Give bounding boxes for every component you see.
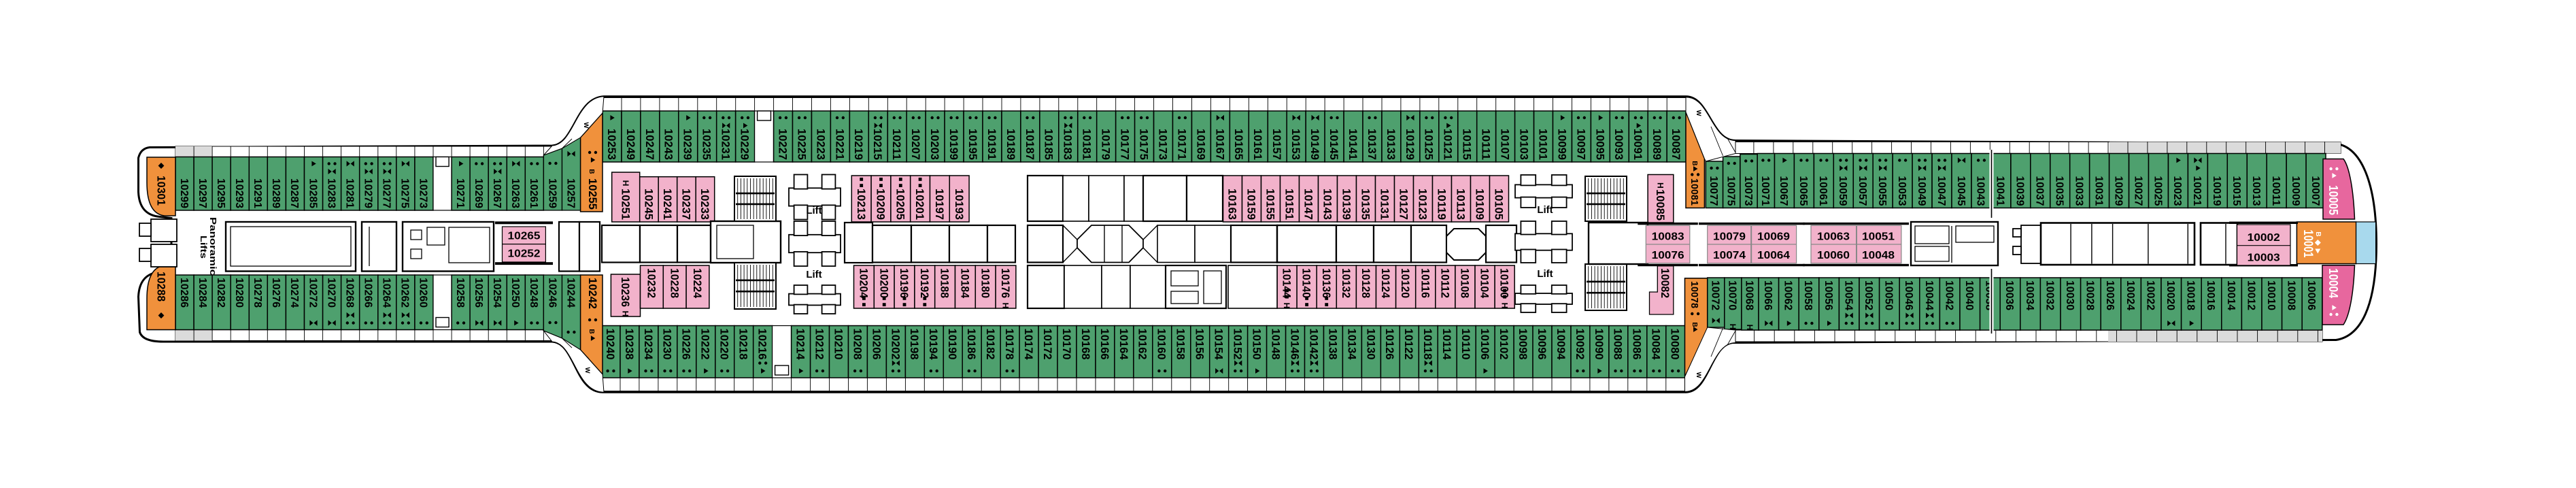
svg-text:10007: 10007	[2309, 176, 2321, 206]
svg-text:10123: 10123	[1417, 189, 1429, 220]
svg-text:10044: 10044	[1923, 280, 1935, 310]
svg-text:10227: 10227	[776, 129, 789, 160]
svg-text:10167: 10167	[1213, 129, 1226, 160]
svg-text:10185: 10185	[1043, 129, 1055, 160]
svg-text:H: H	[621, 311, 630, 317]
svg-text:10198: 10198	[908, 329, 921, 360]
svg-text:10091: 10091	[1631, 129, 1644, 160]
svg-text:10140: 10140	[1300, 268, 1312, 298]
svg-text:10021: 10021	[2191, 176, 2203, 206]
svg-text:10264: 10264	[381, 278, 392, 308]
svg-text:10203: 10203	[928, 129, 941, 160]
svg-text:10075: 10075	[1725, 176, 1737, 206]
svg-text:10224: 10224	[691, 268, 703, 299]
svg-text:10252: 10252	[508, 248, 541, 260]
svg-text:10046: 10046	[1903, 280, 1914, 310]
svg-text:10005: 10005	[2326, 185, 2340, 215]
svg-text:10172: 10172	[1041, 329, 1054, 360]
svg-text:10187: 10187	[1023, 129, 1036, 160]
svg-text:H: H	[1499, 303, 1509, 309]
svg-text:Lift: Lift	[806, 269, 821, 280]
svg-text:10090: 10090	[1593, 329, 1606, 360]
svg-text:10061: 10061	[1817, 176, 1829, 206]
svg-text:10039: 10039	[2014, 176, 2026, 206]
svg-text:10048: 10048	[1862, 250, 1895, 261]
svg-text:10096: 10096	[1536, 329, 1548, 360]
svg-text:10093: 10093	[1612, 129, 1625, 160]
svg-text:10229: 10229	[739, 129, 751, 160]
svg-text:10043: 10043	[1975, 176, 1986, 206]
svg-text:10248: 10248	[528, 278, 539, 308]
svg-text:10027: 10027	[2132, 176, 2143, 206]
svg-text:10078: 10078	[1689, 281, 1700, 308]
svg-text:10268: 10268	[343, 278, 355, 308]
svg-text:10012: 10012	[2245, 280, 2256, 310]
svg-text:10014: 10014	[2225, 280, 2237, 310]
svg-text:10213: 10213	[855, 189, 867, 220]
svg-text:10261: 10261	[528, 178, 539, 208]
svg-text:10154: 10154	[1213, 329, 1225, 361]
svg-text:10082: 10082	[1659, 268, 1671, 298]
svg-text:10120: 10120	[1399, 268, 1411, 298]
svg-text:10180: 10180	[979, 268, 991, 298]
svg-text:H: H	[1001, 303, 1011, 309]
svg-text:10256: 10256	[473, 278, 484, 308]
svg-text:10143: 10143	[1321, 189, 1334, 220]
svg-text:10040: 10040	[1963, 280, 1975, 310]
svg-text:10119: 10119	[1436, 189, 1448, 220]
svg-text:10272: 10272	[307, 278, 318, 308]
svg-text:10025: 10025	[2152, 176, 2163, 206]
svg-text:10253: 10253	[605, 129, 618, 160]
svg-text:10200: 10200	[877, 268, 889, 298]
svg-text:10135: 10135	[1359, 189, 1372, 220]
svg-text:10197: 10197	[933, 189, 945, 220]
svg-text:10022: 10022	[2144, 280, 2156, 310]
svg-text:10182: 10182	[984, 329, 997, 360]
svg-text:10286: 10286	[178, 278, 190, 308]
svg-text:10003: 10003	[2248, 253, 2280, 264]
svg-text:B: B	[1691, 322, 1698, 327]
svg-text:10174: 10174	[1022, 329, 1035, 361]
svg-text:10270: 10270	[325, 278, 337, 308]
svg-text:10196: 10196	[898, 268, 910, 298]
svg-text:10107: 10107	[1499, 129, 1512, 160]
svg-text:10071: 10071	[1759, 176, 1771, 206]
svg-text:10081: 10081	[1689, 178, 1700, 206]
svg-text:10134: 10134	[1345, 329, 1358, 361]
svg-text:10279: 10279	[362, 178, 374, 208]
svg-text:H: H	[1728, 324, 1738, 330]
svg-text:10175: 10175	[1138, 129, 1151, 160]
svg-text:10011: 10011	[2270, 176, 2282, 206]
svg-text:10262: 10262	[399, 278, 411, 308]
svg-text:Lift: Lift	[806, 205, 821, 216]
svg-text:10169: 10169	[1194, 129, 1207, 160]
svg-text:10064: 10064	[1757, 250, 1790, 261]
svg-text:W: W	[583, 368, 591, 374]
svg-text:10131: 10131	[1378, 189, 1391, 220]
svg-text:10274: 10274	[288, 278, 300, 308]
svg-text:10060: 10060	[1817, 250, 1850, 261]
svg-text:10164: 10164	[1117, 329, 1130, 361]
svg-text:10065: 10065	[1797, 176, 1809, 206]
svg-text:H: H	[1282, 303, 1291, 309]
svg-text:10251: 10251	[619, 189, 631, 220]
svg-text:10209: 10209	[875, 189, 887, 220]
svg-text:10161: 10161	[1251, 129, 1264, 160]
svg-text:10068: 10068	[1744, 280, 1755, 310]
svg-text:10152: 10152	[1232, 329, 1244, 360]
svg-text:10223: 10223	[814, 129, 827, 160]
svg-text:10109: 10109	[1474, 189, 1486, 220]
svg-text:10105: 10105	[1493, 189, 1505, 220]
svg-text:10277: 10277	[381, 178, 392, 208]
svg-text:10002: 10002	[2248, 232, 2280, 244]
svg-text:10288: 10288	[154, 272, 167, 302]
svg-text:10114: 10114	[1440, 329, 1453, 361]
svg-text:10124: 10124	[1379, 268, 1391, 299]
svg-text:10128: 10128	[1359, 268, 1372, 298]
svg-text:10139: 10139	[1340, 189, 1353, 220]
svg-text:10250: 10250	[509, 278, 521, 308]
svg-text:10087: 10087	[1670, 129, 1682, 160]
svg-text:10183: 10183	[1062, 129, 1074, 160]
svg-text:10018: 10018	[2185, 280, 2197, 310]
svg-text:10155: 10155	[1264, 189, 1276, 220]
svg-text:10202: 10202	[889, 329, 902, 360]
svg-text:10293: 10293	[233, 178, 245, 208]
svg-text:10201: 10201	[913, 189, 926, 220]
svg-text:10284: 10284	[197, 278, 208, 308]
svg-text:Lift: Lift	[1537, 204, 1553, 216]
svg-text:10162: 10162	[1136, 329, 1149, 360]
svg-text:10190: 10190	[946, 329, 959, 360]
svg-text:10149: 10149	[1308, 129, 1321, 160]
svg-text:10079: 10079	[1713, 231, 1746, 243]
svg-text:10041: 10041	[1995, 176, 2006, 206]
svg-text:10186: 10186	[965, 329, 978, 360]
svg-text:10278: 10278	[252, 278, 263, 308]
svg-text:10246: 10246	[547, 278, 558, 308]
svg-text:10189: 10189	[1004, 129, 1017, 160]
svg-text:W: W	[1695, 110, 1702, 116]
svg-text:10188: 10188	[938, 268, 951, 298]
svg-text:10241: 10241	[661, 189, 673, 220]
svg-text:10265: 10265	[508, 231, 541, 242]
svg-text:10136: 10136	[1320, 268, 1332, 298]
svg-text:10147: 10147	[1302, 189, 1315, 220]
svg-text:10125: 10125	[1423, 129, 1436, 160]
svg-text:10016: 10016	[2205, 280, 2216, 310]
svg-text:10255: 10255	[586, 178, 598, 210]
svg-text:10127: 10127	[1397, 189, 1410, 220]
svg-text:10051: 10051	[1862, 231, 1895, 243]
svg-text:10266: 10266	[362, 278, 374, 308]
svg-text:10228: 10228	[668, 268, 680, 298]
svg-text:10159: 10159	[1245, 189, 1257, 220]
svg-text:10267: 10267	[491, 178, 503, 208]
svg-text:10258: 10258	[454, 278, 466, 308]
svg-text:10153: 10153	[1289, 129, 1302, 160]
svg-text:10219: 10219	[852, 129, 865, 160]
svg-text:10231: 10231	[719, 129, 732, 160]
svg-text:10176: 10176	[999, 268, 1011, 298]
svg-text:10232: 10232	[645, 268, 658, 298]
svg-text:10080: 10080	[1669, 329, 1682, 360]
svg-text:10129: 10129	[1404, 129, 1417, 160]
svg-text:10273: 10273	[418, 178, 429, 208]
svg-text:Panoramic: Panoramic	[208, 217, 218, 276]
svg-text:10113: 10113	[1455, 189, 1467, 220]
svg-text:10165: 10165	[1232, 129, 1245, 160]
svg-text:10245: 10245	[643, 189, 655, 220]
svg-text:10019: 10019	[2211, 176, 2222, 206]
svg-text:10225: 10225	[795, 129, 808, 160]
svg-text:10088: 10088	[1612, 329, 1625, 360]
svg-text:10233: 10233	[698, 189, 711, 220]
svg-text:10030: 10030	[2064, 280, 2075, 310]
svg-text:10285: 10285	[307, 178, 318, 208]
svg-text:10271: 10271	[454, 178, 466, 208]
svg-text:10275: 10275	[399, 178, 411, 208]
svg-text:10073: 10073	[1742, 176, 1754, 206]
svg-text:10257: 10257	[565, 178, 577, 208]
svg-text:10259: 10259	[547, 178, 558, 208]
svg-text:10132: 10132	[1340, 268, 1352, 298]
svg-text:10092: 10092	[1574, 329, 1587, 360]
svg-text:10297: 10297	[197, 178, 208, 208]
svg-text:10058: 10058	[1802, 280, 1814, 310]
svg-text:10089: 10089	[1650, 129, 1663, 160]
svg-text:10237: 10237	[680, 189, 692, 220]
svg-text:10056: 10056	[1823, 280, 1834, 310]
svg-text:10106: 10106	[1478, 329, 1491, 360]
svg-text:10163: 10163	[1226, 189, 1238, 220]
svg-text:10235: 10235	[700, 129, 713, 160]
svg-text:10210: 10210	[832, 329, 845, 360]
svg-text:10184: 10184	[959, 268, 971, 299]
svg-text:10029: 10029	[2112, 176, 2124, 206]
svg-text:10191: 10191	[985, 129, 998, 160]
svg-text:10141: 10141	[1346, 129, 1359, 160]
svg-text:10006: 10006	[2305, 280, 2317, 310]
svg-text:10211: 10211	[890, 129, 903, 160]
svg-text:10111: 10111	[1480, 129, 1493, 160]
svg-text:10263: 10263	[509, 178, 521, 208]
svg-text:10192: 10192	[918, 268, 930, 298]
svg-text:10045: 10045	[1955, 176, 1967, 206]
svg-text:10130: 10130	[1364, 329, 1377, 360]
svg-text:10282: 10282	[215, 278, 226, 308]
svg-text:10086: 10086	[1631, 329, 1644, 360]
svg-text:10193: 10193	[953, 189, 965, 220]
svg-text:10289: 10289	[270, 178, 282, 208]
svg-text:10026: 10026	[2104, 280, 2116, 310]
svg-text:10179: 10179	[1100, 129, 1113, 160]
svg-text:H: H	[1656, 182, 1665, 189]
svg-text:10160: 10160	[1155, 329, 1168, 360]
svg-text:Lift: Lift	[1537, 268, 1553, 280]
svg-text:10104: 10104	[1478, 268, 1491, 299]
svg-text:10254: 10254	[491, 278, 503, 308]
svg-text:10103: 10103	[1518, 129, 1531, 160]
svg-text:10050: 10050	[1883, 280, 1895, 310]
svg-text:10122: 10122	[1402, 329, 1415, 360]
svg-text:10148: 10148	[1270, 329, 1283, 360]
svg-text:10066: 10066	[1762, 280, 1774, 310]
svg-text:10100: 10100	[1498, 268, 1510, 298]
svg-text:10301: 10301	[154, 176, 167, 206]
svg-text:10085: 10085	[1654, 189, 1666, 221]
svg-text:10295: 10295	[215, 178, 226, 208]
svg-text:10032: 10032	[2044, 280, 2055, 310]
svg-text:10118: 10118	[1421, 329, 1434, 360]
svg-text:10126: 10126	[1383, 329, 1396, 360]
svg-text:B: B	[588, 169, 595, 174]
svg-text:10181: 10181	[1081, 129, 1094, 160]
svg-text:10222: 10222	[699, 329, 712, 360]
svg-text:10049: 10049	[1916, 176, 1927, 206]
svg-text:10062: 10062	[1782, 280, 1794, 310]
svg-text:10042: 10042	[1943, 280, 1954, 310]
svg-text:10199: 10199	[947, 129, 960, 160]
svg-text:10059: 10059	[1837, 176, 1848, 206]
svg-text:H: H	[1745, 325, 1755, 331]
svg-text:10001: 10001	[2301, 230, 2315, 258]
svg-text:10063: 10063	[1817, 231, 1850, 243]
svg-text:10214: 10214	[794, 329, 807, 361]
svg-text:Lifts: Lifts	[199, 235, 209, 259]
svg-text:10260: 10260	[418, 278, 429, 308]
svg-text:10205: 10205	[894, 189, 906, 220]
svg-text:10084: 10084	[1650, 329, 1663, 361]
svg-text:10170: 10170	[1060, 329, 1073, 360]
svg-text:10247: 10247	[643, 129, 656, 160]
svg-text:10094: 10094	[1555, 329, 1567, 361]
svg-text:10194: 10194	[927, 329, 940, 361]
svg-text:10047: 10047	[1935, 176, 1947, 206]
svg-text:10283: 10283	[325, 178, 337, 208]
svg-text:10158: 10158	[1174, 329, 1187, 360]
svg-text:10240: 10240	[604, 329, 617, 360]
svg-text:10115: 10115	[1461, 129, 1474, 160]
svg-text:10053: 10053	[1896, 176, 1908, 206]
svg-text:10204: 10204	[858, 268, 870, 299]
svg-text:10083: 10083	[1652, 231, 1684, 243]
svg-text:10036: 10036	[2003, 280, 2015, 310]
svg-text:10108: 10108	[1459, 268, 1471, 298]
svg-text:10110: 10110	[1459, 329, 1472, 360]
svg-text:W: W	[1695, 372, 1702, 378]
svg-text:10057: 10057	[1857, 176, 1868, 206]
svg-text:10035: 10035	[2054, 176, 2065, 206]
svg-text:10145: 10145	[1327, 129, 1340, 160]
svg-text:10242: 10242	[586, 278, 598, 309]
svg-text:10207: 10207	[909, 129, 922, 160]
svg-text:10151: 10151	[1283, 189, 1295, 220]
svg-text:10077: 10077	[1708, 176, 1719, 206]
svg-text:10098: 10098	[1516, 329, 1529, 360]
svg-text:10195: 10195	[966, 129, 979, 160]
svg-text:10215: 10215	[871, 129, 884, 160]
svg-text:10171: 10171	[1175, 129, 1188, 160]
svg-text:10101: 10101	[1536, 129, 1549, 160]
svg-text:10280: 10280	[233, 278, 245, 308]
svg-text:10142: 10142	[1307, 329, 1320, 360]
svg-text:10212: 10212	[813, 329, 826, 360]
svg-text:10276: 10276	[270, 278, 282, 308]
svg-text:10070: 10070	[1727, 280, 1738, 310]
svg-text:10024: 10024	[2124, 280, 2136, 310]
svg-text:10009: 10009	[2290, 176, 2301, 206]
svg-text:10236: 10236	[619, 277, 631, 307]
svg-text:10177: 10177	[1119, 129, 1132, 160]
svg-text:10291: 10291	[252, 178, 263, 208]
svg-text:10010: 10010	[2265, 280, 2277, 310]
svg-text:10116: 10116	[1419, 268, 1431, 298]
svg-text:10220: 10220	[718, 329, 731, 360]
svg-text:10234: 10234	[642, 329, 655, 361]
svg-text:10097: 10097	[1574, 129, 1587, 160]
svg-text:10249: 10249	[624, 129, 637, 160]
svg-text:10178: 10178	[1003, 329, 1016, 360]
svg-text:10218: 10218	[737, 329, 750, 360]
svg-text:10138: 10138	[1326, 329, 1339, 360]
svg-text:10168: 10168	[1079, 329, 1092, 360]
svg-text:10121: 10121	[1442, 129, 1455, 160]
svg-text:10023: 10023	[2171, 176, 2183, 206]
svg-text:B: B	[588, 329, 595, 334]
svg-text:10020: 10020	[2165, 280, 2176, 310]
svg-text:10034: 10034	[2024, 280, 2035, 310]
svg-text:10206: 10206	[870, 329, 883, 360]
svg-text:10076: 10076	[1652, 250, 1684, 261]
svg-text:10208: 10208	[851, 329, 864, 360]
svg-text:10238: 10238	[623, 329, 636, 360]
svg-text:10226: 10226	[680, 329, 693, 360]
svg-text:10069: 10069	[1757, 231, 1790, 243]
svg-text:10004: 10004	[2326, 268, 2340, 298]
svg-text:10157: 10157	[1270, 129, 1283, 160]
svg-text:10072: 10072	[1710, 280, 1721, 310]
svg-text:10099: 10099	[1555, 129, 1568, 160]
svg-text:10133: 10133	[1385, 129, 1397, 160]
svg-text:10052: 10052	[1863, 280, 1874, 310]
svg-text:10033: 10033	[2073, 176, 2085, 206]
svg-text:10156: 10156	[1193, 329, 1206, 360]
svg-text:10144: 10144	[1281, 268, 1293, 299]
svg-text:W: W	[582, 123, 590, 129]
svg-text:10137: 10137	[1366, 129, 1378, 160]
svg-text:10269: 10269	[473, 178, 484, 208]
svg-text:10102: 10102	[1497, 329, 1510, 360]
svg-text:10230: 10230	[661, 329, 674, 360]
svg-text:10008: 10008	[2286, 280, 2297, 310]
svg-text:10112: 10112	[1438, 268, 1451, 298]
svg-text:10074: 10074	[1713, 250, 1746, 261]
svg-text:10287: 10287	[288, 178, 300, 208]
svg-text:10095: 10095	[1593, 129, 1606, 160]
svg-text:10243: 10243	[662, 129, 675, 160]
svg-text:10299: 10299	[178, 178, 190, 208]
svg-text:10054: 10054	[1842, 280, 1854, 310]
svg-text:10150: 10150	[1251, 329, 1264, 360]
svg-text:10146: 10146	[1288, 329, 1301, 360]
svg-text:10166: 10166	[1098, 329, 1111, 360]
svg-text:10055: 10055	[1876, 176, 1888, 206]
svg-text:10221: 10221	[833, 129, 846, 160]
